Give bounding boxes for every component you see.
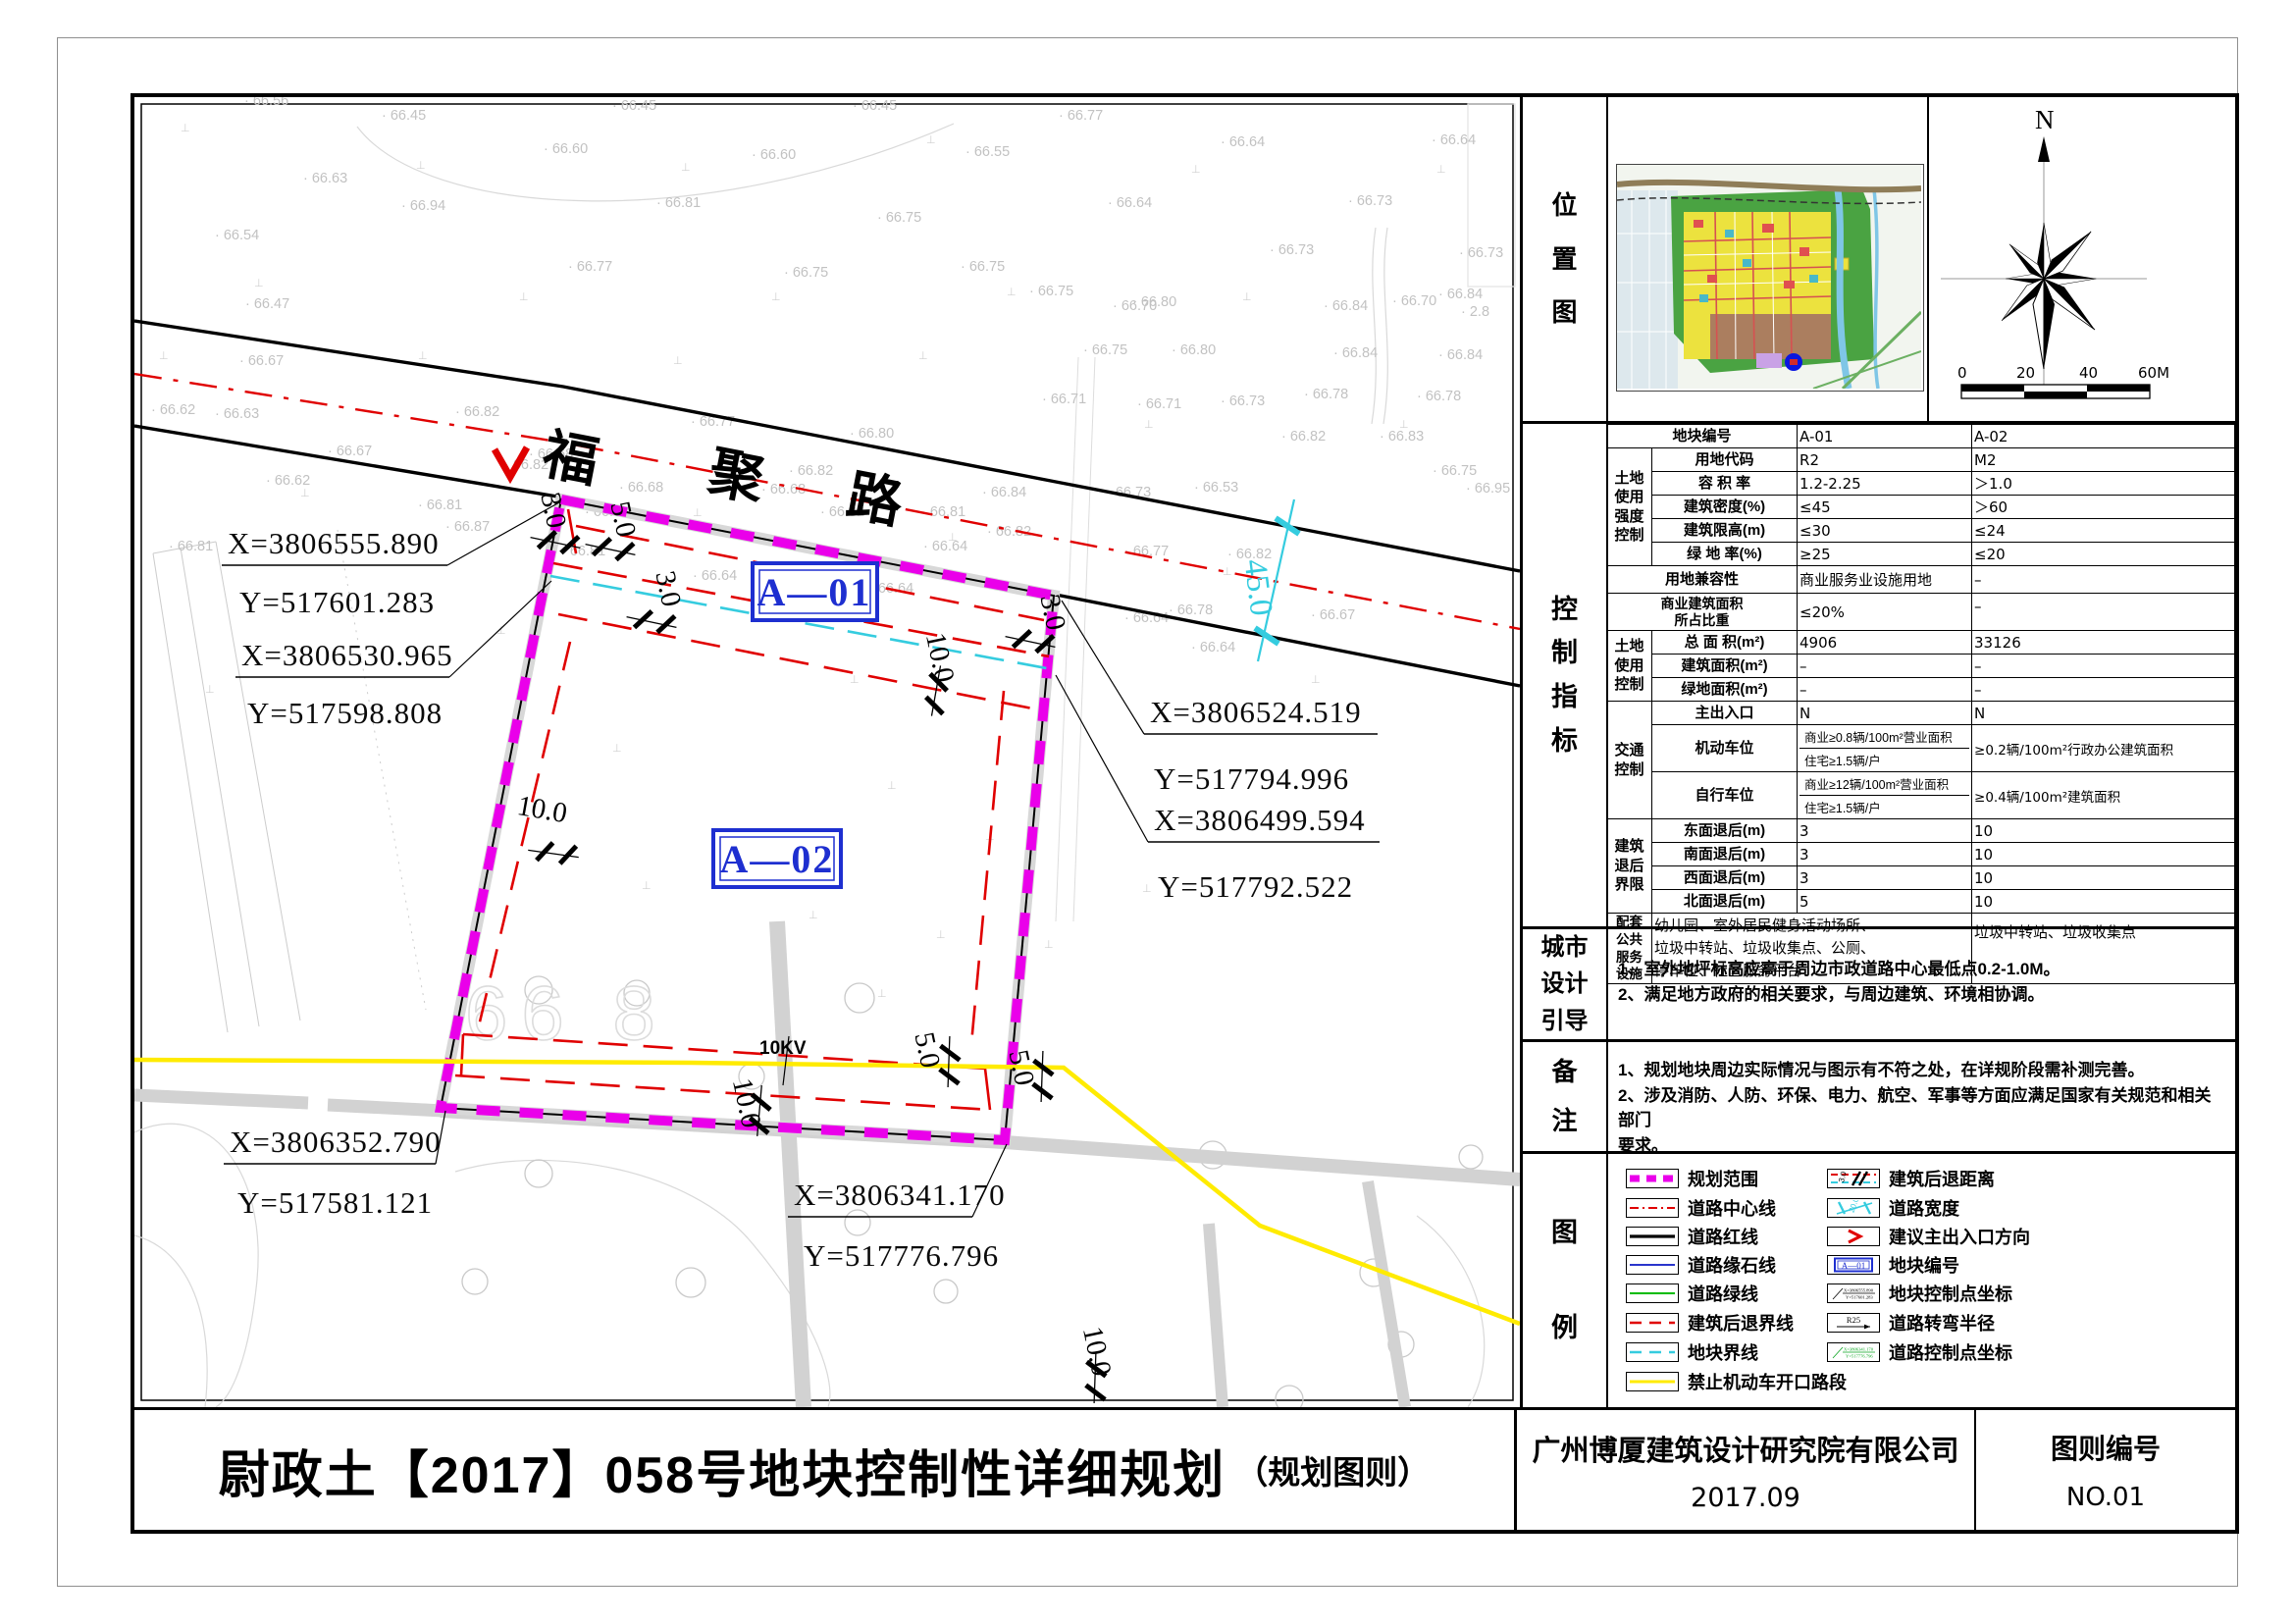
callout-y: Y=517792.522 bbox=[1158, 869, 1353, 904]
svg-text:· 66.73: · 66.73 bbox=[1221, 393, 1265, 409]
svg-text:· 66.80: · 66.80 bbox=[850, 426, 894, 442]
svg-text:· 66.45: · 66.45 bbox=[612, 98, 656, 114]
svg-text:· 66.60: · 66.60 bbox=[544, 141, 588, 157]
drawing-date: 2017.09 bbox=[1691, 1483, 1800, 1513]
table-cell: ≤20% bbox=[1798, 594, 1972, 631]
table-cell: – bbox=[1972, 594, 2235, 631]
svg-text:· 66.67: · 66.67 bbox=[1311, 607, 1355, 623]
parking-residential: 住宅≥1.5辆/户 bbox=[1799, 749, 1969, 771]
section-legend-label: 图 例 bbox=[1523, 1154, 1608, 1407]
svg-text:· 66.75: · 66.75 bbox=[1083, 342, 1127, 358]
legend-label: 道路宽度 bbox=[1889, 1195, 1959, 1221]
svg-text:· 66.64: · 66.64 bbox=[693, 568, 737, 584]
svg-text:· 66.54: · 66.54 bbox=[215, 228, 259, 243]
svg-text:R25: R25 bbox=[1847, 1315, 1860, 1325]
section-urban-design: 城市 设计 引导 1、室外地坪标高应高于周边市政道路中心最低点0.2-1.0M。… bbox=[1523, 926, 2235, 1039]
legend-label: 地块界线 bbox=[1688, 1339, 1758, 1365]
svg-text:· 66.80: · 66.80 bbox=[1132, 294, 1176, 310]
legend-label: 道路控制点坐标 bbox=[1889, 1339, 2012, 1365]
legend-item: 地块界线 bbox=[1626, 1341, 1758, 1363]
info-panel: 位 置 图 bbox=[1520, 97, 2235, 1407]
table-cell: ≤45 bbox=[1798, 496, 1972, 519]
planning-boundary-icon bbox=[1626, 1169, 1679, 1188]
svg-text:⊥: ⊥ bbox=[771, 290, 781, 303]
notes-text: 1、规划地块周边实际情况与图示有不符之处，在详规阶段需补测完善。 2、涉及消防、… bbox=[1618, 1058, 2225, 1158]
svg-text:⊥: ⊥ bbox=[1191, 163, 1201, 176]
svg-text:⊥: ⊥ bbox=[1007, 286, 1017, 298]
svg-text:· 66.68: · 66.68 bbox=[619, 480, 663, 496]
svg-text:⊥: ⊥ bbox=[642, 879, 652, 892]
scale-bar: 0 20 40 60M bbox=[1957, 364, 2169, 398]
plot-a01-label: A—01 bbox=[757, 570, 872, 614]
svg-text:· 66.84: · 66.84 bbox=[1438, 347, 1483, 363]
table-cell: 地块编号 bbox=[1607, 425, 1798, 448]
svg-text:⊥: ⊥ bbox=[1142, 882, 1152, 895]
table-cell: ≥0.2辆/100m²行政办公建筑面积 bbox=[1972, 725, 2235, 772]
callout-x: X=3806530.965 bbox=[241, 638, 453, 672]
svg-text:⊥: ⊥ bbox=[205, 683, 215, 696]
plot-boundary-icon bbox=[1626, 1342, 1679, 1362]
callout-y: Y=517776.796 bbox=[804, 1238, 999, 1273]
svg-text:· 66.84: · 66.84 bbox=[1324, 298, 1368, 314]
svg-text:⊥: ⊥ bbox=[254, 277, 264, 289]
sheet-number: NO.01 bbox=[2066, 1483, 2145, 1512]
svg-text:· 66.64: · 66.64 bbox=[1191, 640, 1235, 655]
legend-item: 道路绿线 bbox=[1626, 1283, 1758, 1304]
svg-text:⊥: ⊥ bbox=[926, 133, 936, 146]
legend-label: 规划范围 bbox=[1688, 1166, 1758, 1191]
svg-text:· 66.84: · 66.84 bbox=[1333, 345, 1378, 361]
svg-text:⊥: ⊥ bbox=[681, 161, 691, 174]
legend-label: 建筑后退距离 bbox=[1889, 1166, 1995, 1191]
site-plan-map: 66 8 · 66.56· 66.45· 66.45· 66.45· 66.77… bbox=[134, 97, 1520, 1407]
road-width-icon: 20.0 bbox=[1827, 1198, 1880, 1218]
svg-text:· 66.64: · 66.64 bbox=[1221, 134, 1265, 150]
callout-x: X=3806524.519 bbox=[1150, 695, 1362, 729]
svg-text:⊥: ⊥ bbox=[918, 349, 928, 362]
svg-text:· 66.75: · 66.75 bbox=[1433, 463, 1477, 479]
table-cell: 3 bbox=[1798, 866, 1972, 890]
compass-area: N 0 20 40 60M bbox=[1927, 97, 2240, 421]
svg-text:· 66.73: · 66.73 bbox=[1459, 245, 1503, 261]
no-vehicle-opening-icon bbox=[1626, 1372, 1679, 1391]
legend-item: A—01 地块编号 bbox=[1827, 1254, 1959, 1276]
table-cell: – bbox=[1972, 566, 2235, 594]
table-cell: 东面退后(m) bbox=[1652, 819, 1798, 843]
legend-label: 建筑后退界线 bbox=[1688, 1310, 1794, 1336]
legend-label: 道路转弯半径 bbox=[1889, 1310, 1995, 1336]
svg-text:⊥: ⊥ bbox=[1242, 290, 1252, 303]
callout-y: Y=517601.283 bbox=[239, 585, 435, 619]
table-cell: 北面退后(m) bbox=[1652, 890, 1798, 914]
section-urban-design-label: 城市 设计 引导 bbox=[1523, 929, 1608, 1039]
legend-item: X=3806555.890 Y=517601.283 地块控制点坐标 bbox=[1827, 1283, 2012, 1304]
legend-item: 建筑后退界线 bbox=[1626, 1312, 1794, 1334]
table-cell: ≤24 bbox=[1972, 519, 2235, 543]
road-name-char: 福 bbox=[537, 424, 603, 495]
svg-text:⊥: ⊥ bbox=[1436, 163, 1446, 176]
table-cell: A-02 bbox=[1972, 425, 2235, 448]
section-location: 位 置 图 bbox=[1523, 97, 2235, 421]
setback-line-icon bbox=[1626, 1313, 1679, 1333]
drawing-title-suffix: （规划图则） bbox=[1235, 1446, 1430, 1493]
table-cell: 自行车位 bbox=[1652, 772, 1798, 819]
svg-text:· 66.75: · 66.75 bbox=[961, 259, 1005, 275]
table-cell: 3 bbox=[1798, 819, 1972, 843]
road-turn-radius-icon: R25 bbox=[1827, 1313, 1880, 1333]
section-legend: 图 例 规划范围 道路中心线 道路红线 道路缘石线 道路绿线 bbox=[1523, 1151, 2235, 1407]
svg-text:· 66.81: · 66.81 bbox=[921, 504, 965, 520]
table-cell: ≤30 bbox=[1798, 519, 1972, 543]
legend-label: 道路中心线 bbox=[1688, 1195, 1776, 1221]
sheet-number-cell: 图则编号 NO.01 bbox=[1976, 1410, 2235, 1530]
scale-tick: 0 bbox=[1957, 364, 1967, 382]
svg-text:· 66.64: · 66.64 bbox=[1108, 195, 1152, 211]
svg-text:· 66.62: · 66.62 bbox=[151, 402, 195, 418]
group-label: 土地 使用 强度 控制 bbox=[1607, 448, 1652, 566]
table-cell: 机动车位 bbox=[1652, 725, 1798, 772]
table-cell: R2 bbox=[1798, 448, 1972, 472]
svg-text:· 66.63: · 66.63 bbox=[303, 171, 347, 186]
compass-rose-icon: N bbox=[1941, 105, 2147, 392]
svg-text:· 66.82: · 66.82 bbox=[1281, 429, 1326, 445]
svg-text:⊥: ⊥ bbox=[693, 506, 703, 519]
group-label: 建筑 退后 界限 bbox=[1607, 819, 1652, 914]
legend-item: R25 道路转弯半径 bbox=[1827, 1312, 1995, 1334]
svg-text:⊥: ⊥ bbox=[850, 673, 860, 686]
drawing-title-cell: 尉政土【2017】058号地块控制性详细规划 （规划图则） bbox=[134, 1410, 1517, 1530]
bike-commercial: 商业≥12辆/100m²营业面积 bbox=[1799, 772, 1969, 796]
legend-label: 道路缘石线 bbox=[1688, 1252, 1776, 1278]
drawing-title: 尉政土【2017】058号地块控制性详细规划 bbox=[219, 1434, 1226, 1507]
table-cell: 建筑限高(m) bbox=[1652, 519, 1798, 543]
svg-text:· 66.80: · 66.80 bbox=[1172, 342, 1216, 358]
table-cell: 3 bbox=[1798, 843, 1972, 866]
road-green-line-icon bbox=[1626, 1283, 1679, 1303]
company-name: 广州博厦建筑设计研究院有限公司 bbox=[1532, 1428, 1958, 1469]
north-arrow-icon bbox=[2038, 136, 2050, 162]
table-cell: 4906 bbox=[1798, 631, 1972, 655]
contour-label: 66 8 bbox=[465, 969, 669, 1056]
section-indicators: 控 制 指 标 地块编号 A-01 A-02 土地 使用 强度 控制 用地代码 … bbox=[1523, 421, 2235, 926]
svg-text:· 66.67: · 66.67 bbox=[239, 353, 284, 369]
table-cell: 主出入口 bbox=[1652, 702, 1798, 725]
notes-line: 2、涉及消防、人防、环保、电力、航空、军事等方面应满足国家有关规范和相关部门 bbox=[1618, 1083, 2225, 1133]
table-cell: 33126 bbox=[1972, 631, 2235, 655]
svg-text:· 66.95: · 66.95 bbox=[1466, 481, 1510, 497]
svg-text:· 66.71: · 66.71 bbox=[1137, 396, 1181, 412]
svg-text:A—01: A—01 bbox=[1842, 1261, 1866, 1271]
table-cell: M2 bbox=[1972, 448, 2235, 472]
table-cell: 10 bbox=[1972, 843, 2235, 866]
svg-text:⊥: ⊥ bbox=[1044, 938, 1054, 951]
urban-design-line: 2、满足地方政府的相关要求，与周边建筑、环境相协调。 bbox=[1618, 982, 2225, 1008]
svg-text:· 2.8: · 2.8 bbox=[1461, 304, 1489, 320]
plot-label-a02: A—02 bbox=[713, 830, 841, 887]
legend-label: 道路红线 bbox=[1688, 1224, 1758, 1249]
section-indicators-label: 控 制 指 标 bbox=[1523, 424, 1608, 926]
svg-text:· 66.73: · 66.73 bbox=[1270, 242, 1314, 258]
legend-label: 道路绿线 bbox=[1688, 1281, 1758, 1306]
svg-text:⊥: ⊥ bbox=[877, 987, 887, 1000]
plan-sheet: { "titleblock": { "title": "尉政土【2017】058… bbox=[0, 0, 2295, 1624]
legend-item: 道路红线 bbox=[1626, 1226, 1758, 1247]
section-notes: 备 注 1、规划地块周边实际情况与图示有不符之处，在详规阶段需补测完善。 2、涉… bbox=[1523, 1039, 2235, 1151]
urban-design-text: 1、室外地坪标高应高于周边市政道路中心最低点0.2-1.0M。 2、满足地方政府… bbox=[1618, 957, 2225, 1007]
table-cell: ＞1.0 bbox=[1972, 472, 2235, 496]
legend-label: 禁止机动车开口路段 bbox=[1688, 1369, 1847, 1394]
road-red-line-icon bbox=[1626, 1227, 1679, 1246]
table-cell: 西面退后(m) bbox=[1652, 866, 1798, 890]
table-cell: 10 bbox=[1972, 819, 2235, 843]
svg-text:· 66.64: · 66.64 bbox=[1432, 132, 1476, 148]
table-cell: 建筑面积(m²) bbox=[1652, 655, 1798, 678]
svg-text:· 66.94: · 66.94 bbox=[401, 198, 445, 214]
svg-text:⊥: ⊥ bbox=[496, 624, 506, 637]
svg-text:⊥: ⊥ bbox=[936, 928, 946, 941]
table-cell: ≤20 bbox=[1972, 543, 2235, 566]
svg-text:· 66.78: · 66.78 bbox=[1304, 387, 1348, 402]
plot-number-icon: A—01 bbox=[1827, 1255, 1880, 1275]
title-block: 尉政土【2017】058号地块控制性详细规划 （规划图则） 广州博厦建筑设计研究… bbox=[134, 1407, 2235, 1530]
legend-item: 规划范围 bbox=[1626, 1168, 1758, 1189]
table-cell: – bbox=[1798, 678, 1972, 702]
table-cell: 1.2-2.25 bbox=[1798, 472, 1972, 496]
plot-a02-label: A—02 bbox=[720, 837, 835, 881]
callout-y: Y=517794.996 bbox=[1154, 761, 1349, 796]
drawing-frame: 66 8 · 66.56· 66.45· 66.45· 66.45· 66.77… bbox=[130, 93, 2239, 1534]
svg-text:⊥: ⊥ bbox=[300, 487, 310, 499]
location-map bbox=[1616, 164, 1924, 392]
main-entrance-direction-icon bbox=[1827, 1227, 1880, 1246]
setback-distance-icon: 3.0 bbox=[1827, 1169, 1880, 1188]
svg-text:· 66.75: · 66.75 bbox=[1029, 284, 1073, 299]
svg-text:· 66.82: · 66.82 bbox=[789, 463, 833, 479]
road-control-point-icon: X=3806341.170 Y=517776.796 bbox=[1827, 1342, 1880, 1362]
table-cell: 商业≥12辆/100m²营业面积 住宅≥1.5辆/户 bbox=[1798, 772, 1972, 819]
table-cell: 容 积 率 bbox=[1652, 472, 1798, 496]
legend-item: 3.0 建筑后退距离 bbox=[1827, 1168, 1995, 1189]
parking-commercial: 商业≥0.8辆/100m²营业面积 bbox=[1799, 725, 1969, 749]
svg-text:X=3806341.170: X=3806341.170 bbox=[1844, 1347, 1874, 1352]
callout-y: Y=517598.808 bbox=[247, 696, 443, 730]
table-cell: 建筑密度(%) bbox=[1652, 496, 1798, 519]
svg-text:Y=517776.796: Y=517776.796 bbox=[1846, 1354, 1873, 1359]
svg-text:X=3806555.890: X=3806555.890 bbox=[1844, 1288, 1874, 1293]
svg-text:· 66.64: · 66.64 bbox=[923, 539, 967, 554]
power-line-label: 10KV bbox=[759, 1038, 807, 1059]
legend-label: 地块控制点坐标 bbox=[1889, 1281, 2012, 1306]
table-cell: – bbox=[1972, 655, 2235, 678]
callout-x: X=3806341.170 bbox=[794, 1178, 1006, 1212]
table-cell: 南面退后(m) bbox=[1652, 843, 1798, 866]
svg-text:· 66.60: · 66.60 bbox=[752, 147, 796, 163]
svg-text:⊥: ⊥ bbox=[612, 742, 622, 755]
table-cell: – bbox=[1972, 678, 2235, 702]
svg-text:· 66.77: · 66.77 bbox=[1059, 108, 1103, 124]
svg-text:⊥: ⊥ bbox=[159, 349, 169, 362]
svg-text:· 66.55: · 66.55 bbox=[965, 144, 1010, 160]
svg-text:· 66.84: · 66.84 bbox=[982, 485, 1026, 500]
table-cell: 商业建筑面积 所占比重 bbox=[1607, 594, 1798, 631]
urban-design-line: 1、室外地坪标高应高于周边市政道路中心最低点0.2-1.0M。 bbox=[1618, 957, 2225, 982]
table-cell: 10 bbox=[1972, 890, 2235, 914]
legend-item: 20.0 道路宽度 bbox=[1827, 1197, 1959, 1219]
bike-residential: 住宅≥1.5辆/户 bbox=[1799, 796, 1969, 818]
svg-text:· 66.63: · 66.63 bbox=[215, 406, 259, 422]
table-cell: ≥0.4辆/100m²建筑面积 bbox=[1972, 772, 2235, 819]
callout-x: X=3806555.890 bbox=[228, 526, 440, 560]
svg-text:⊥: ⊥ bbox=[519, 290, 529, 303]
svg-text:· 66.73: · 66.73 bbox=[1348, 193, 1392, 209]
legend-item: 道路中心线 bbox=[1626, 1197, 1776, 1219]
svg-text:· 66.67: · 66.67 bbox=[328, 444, 372, 459]
legend-item: 禁止机动车开口路段 bbox=[1626, 1371, 1847, 1392]
table-cell: – bbox=[1798, 655, 1972, 678]
section-location-label: 位 置 图 bbox=[1523, 97, 1608, 421]
svg-text:⊥: ⊥ bbox=[181, 122, 190, 134]
table-cell: A-01 bbox=[1798, 425, 1972, 448]
table-cell: 总 面 积(m²) bbox=[1652, 631, 1798, 655]
callout-x: X=3806352.790 bbox=[230, 1125, 442, 1159]
svg-text:⊥: ⊥ bbox=[1399, 418, 1409, 431]
table-cell: N bbox=[1798, 702, 1972, 725]
north-label: N bbox=[2035, 105, 2055, 134]
svg-text:· 66.87: · 66.87 bbox=[445, 519, 490, 535]
svg-text:· 66.70: · 66.70 bbox=[1392, 293, 1436, 309]
svg-text:⊥: ⊥ bbox=[673, 354, 683, 367]
road-width-label: 45.0 bbox=[1237, 557, 1279, 618]
table-cell: 10 bbox=[1972, 866, 2235, 890]
svg-text:· 66.82: · 66.82 bbox=[455, 404, 499, 420]
callout-x: X=3806499.594 bbox=[1154, 803, 1366, 837]
table-cell: 5 bbox=[1798, 890, 1972, 914]
svg-text:· 66.56: · 66.56 bbox=[244, 97, 288, 109]
group-label: 交通 控制 bbox=[1607, 702, 1652, 819]
svg-text:⊥: ⊥ bbox=[808, 909, 818, 921]
road-curb-line-icon bbox=[1626, 1255, 1679, 1275]
svg-text:· 66.81: · 66.81 bbox=[656, 195, 701, 211]
plot-label-a01: A—01 bbox=[753, 563, 877, 620]
table-cell: 绿地面积(m²) bbox=[1652, 678, 1798, 702]
table-cell: 绿 地 率(%) bbox=[1652, 543, 1798, 566]
svg-text:· 66.81: · 66.81 bbox=[418, 498, 462, 513]
svg-text:· 66.71: · 66.71 bbox=[1042, 392, 1086, 407]
table-cell: 商业≥0.8辆/100m²营业面积 住宅≥1.5辆/户 bbox=[1798, 725, 1972, 772]
svg-text:· 66.78: · 66.78 bbox=[1169, 602, 1213, 618]
legend-item: 道路缘石线 bbox=[1626, 1254, 1776, 1276]
svg-text:⊥: ⊥ bbox=[1144, 418, 1154, 431]
svg-text:⊥: ⊥ bbox=[416, 159, 426, 172]
svg-text:· 66.84: · 66.84 bbox=[1438, 287, 1483, 302]
legend-label: 地块编号 bbox=[1889, 1252, 1959, 1278]
section-notes-label: 备 注 bbox=[1523, 1042, 1608, 1151]
group-label: 土地 使用 控制 bbox=[1607, 631, 1652, 702]
svg-text:· 66.75: · 66.75 bbox=[877, 210, 921, 226]
svg-text:· 66.75: · 66.75 bbox=[784, 265, 828, 281]
scale-tick: 40 bbox=[2079, 364, 2098, 382]
notes-line: 1、规划地块周边实际情况与图示有不符之处，在详规阶段需补测完善。 bbox=[1618, 1058, 2225, 1083]
svg-text:· 66.81: · 66.81 bbox=[169, 539, 213, 554]
callout-y: Y=517581.121 bbox=[237, 1185, 433, 1220]
svg-text:· 66.45: · 66.45 bbox=[382, 108, 426, 124]
table-cell: ＞60 bbox=[1972, 496, 2235, 519]
table-cell: 用地兼容性 bbox=[1607, 566, 1798, 594]
table-cell: N bbox=[1972, 702, 2235, 725]
svg-text:· 66.53: · 66.53 bbox=[1194, 480, 1238, 496]
svg-text:· 66.47: · 66.47 bbox=[245, 296, 289, 312]
svg-text:· 66.78: · 66.78 bbox=[1417, 389, 1461, 404]
scale-tick: 20 bbox=[2016, 364, 2035, 382]
scale-tick: 60M bbox=[2138, 364, 2169, 382]
svg-text:⊥: ⊥ bbox=[1311, 673, 1321, 686]
svg-text:⊥: ⊥ bbox=[418, 349, 428, 362]
indicators-table: 地块编号 A-01 A-02 土地 使用 强度 控制 用地代码 R2 M2 容 … bbox=[1606, 424, 2235, 984]
svg-text:· 66.83: · 66.83 bbox=[1380, 429, 1424, 445]
table-cell: ≥25 bbox=[1798, 543, 1972, 566]
svg-text:Y=517601.283: Y=517601.283 bbox=[1846, 1295, 1873, 1300]
company-cell: 广州博厦建筑设计研究院有限公司 2017.09 bbox=[1517, 1410, 1976, 1530]
svg-text:⊥: ⊥ bbox=[1223, 565, 1232, 578]
svg-text:⊥: ⊥ bbox=[887, 779, 897, 792]
sheet-number-label: 图则编号 bbox=[2051, 1428, 2161, 1467]
legend-item: X=3806341.170 Y=517776.796 道路控制点坐标 bbox=[1827, 1341, 2012, 1363]
table-cell: 用地代码 bbox=[1652, 448, 1798, 472]
table-cell: 商业服务业设施用地 bbox=[1798, 566, 1972, 594]
svg-text:⊥: ⊥ bbox=[948, 531, 958, 544]
legend-label: 建议主出入口方向 bbox=[1889, 1224, 2030, 1249]
svg-text:· 66.77: · 66.77 bbox=[568, 259, 612, 275]
road-center-line-icon bbox=[1626, 1198, 1679, 1218]
legend-item: 建议主出入口方向 bbox=[1827, 1226, 2030, 1247]
plot-control-point-icon: X=3806555.890 Y=517601.283 bbox=[1827, 1283, 1880, 1303]
svg-text:· 66.45: · 66.45 bbox=[853, 98, 897, 114]
